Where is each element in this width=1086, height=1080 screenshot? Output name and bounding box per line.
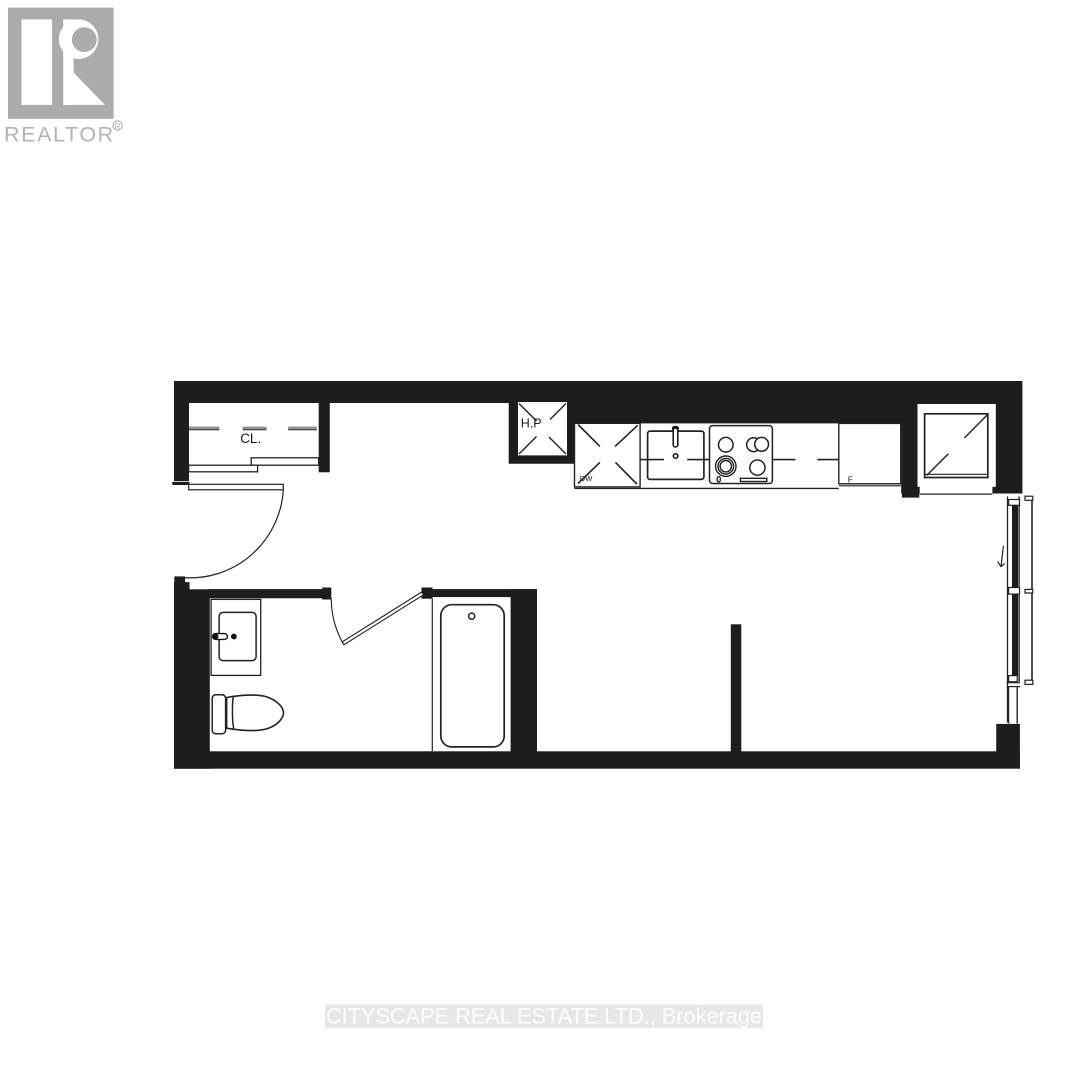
svg-text:F: F bbox=[848, 475, 853, 485]
svg-text:R: R bbox=[115, 122, 121, 131]
svg-text:DW: DW bbox=[580, 474, 593, 483]
svg-text:H.P: H.P bbox=[521, 417, 542, 431]
svg-text:REALTOR: REALTOR bbox=[4, 123, 115, 147]
svg-text:CL.: CL. bbox=[240, 431, 261, 446]
svg-text:CITYSCAPE REAL ESTATE LTD., B: CITYSCAPE REAL ESTATE LTD., Brokerage bbox=[326, 1004, 762, 1029]
